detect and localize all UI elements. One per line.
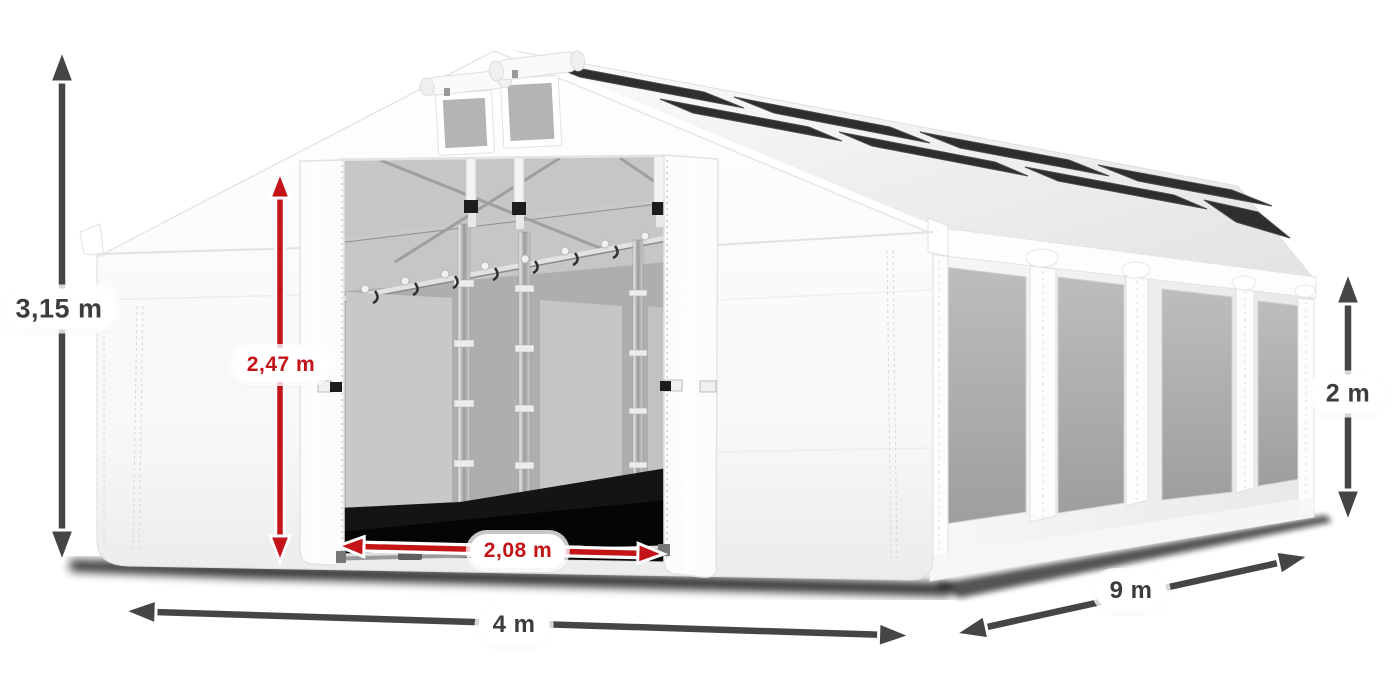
entrance-height-label: 2,47 m	[233, 348, 329, 382]
total-height-label: 3,15 m	[1, 289, 116, 330]
front-width-label: 4 m	[479, 606, 550, 644]
side-window-4	[1258, 301, 1300, 486]
side-post-1	[1030, 266, 1056, 522]
gable-vent-window-1	[435, 91, 494, 156]
side-length-label: 9 m	[1096, 572, 1167, 610]
tent-illustration	[0, 0, 1400, 700]
door-toggle-left	[318, 381, 342, 392]
side-window-3	[1162, 289, 1232, 500]
side-wall-height-label: 2 m	[1312, 375, 1385, 414]
side-window-1	[944, 267, 1026, 524]
entrance-width-label: 2,08 m	[470, 534, 566, 568]
side-window-2	[1058, 277, 1124, 513]
tent-product-illustration: 3,15 m 2,47 m 2,08 m 4 m 9 m 2 m	[0, 0, 1400, 700]
entrance-interior	[338, 154, 667, 565]
